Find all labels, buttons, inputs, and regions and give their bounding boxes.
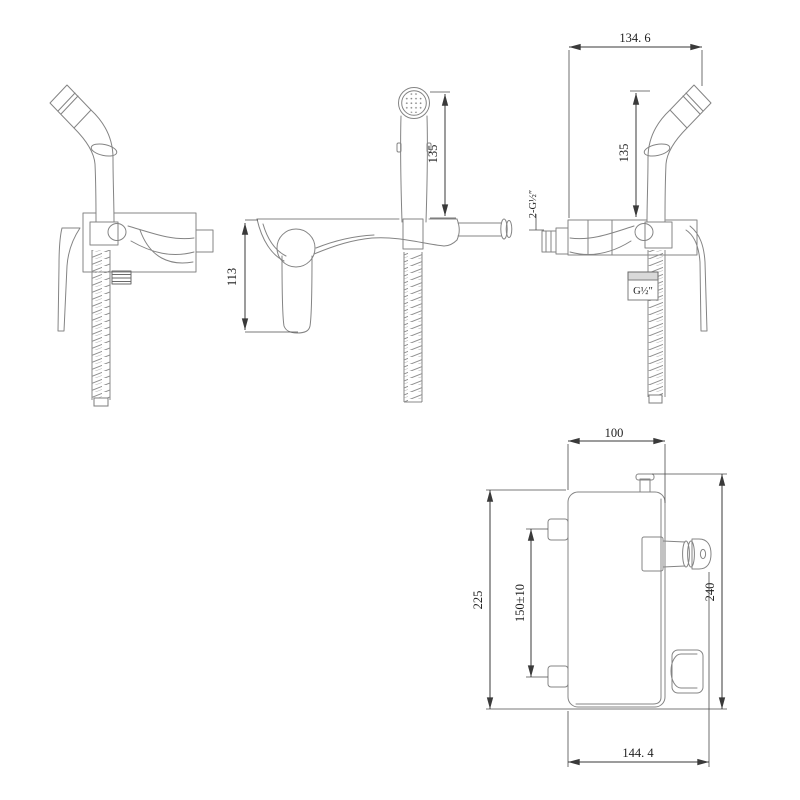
knob-stem	[640, 479, 650, 492]
body-left-swoop	[257, 219, 286, 261]
inlet-tab-lower	[548, 666, 568, 687]
hose-coil-front	[404, 252, 422, 402]
sprayer-nozzle-bands-right	[683, 93, 703, 114]
inlet-tab-upper	[548, 519, 568, 540]
pivot-dome-right	[635, 224, 653, 241]
technical-drawing-sheet: 135 113 G½″ 134. 6	[0, 0, 800, 800]
sprayer-socket-front	[403, 219, 423, 249]
sprayer-handle-right	[647, 110, 687, 222]
dim-plate-height: 225	[471, 591, 485, 610]
handle-end-hole	[700, 549, 705, 558]
inlet-pipe	[556, 228, 568, 254]
sprayer-nozzle-right	[670, 85, 711, 128]
dim-overall-height: 240	[703, 583, 717, 602]
pivot-dome	[108, 224, 126, 241]
inlet-nut-ribs	[546, 231, 551, 252]
view-front: 135 113	[225, 88, 512, 403]
spray-face-dots	[404, 93, 424, 113]
plate-inner-edge	[576, 499, 661, 704]
sprayer-socket-right	[645, 222, 672, 248]
body-right-cap	[444, 219, 459, 246]
dim-plate-width: 100	[605, 426, 624, 440]
dim-inlet-spacing: 150±10	[513, 584, 527, 622]
sprayer-grip	[401, 116, 428, 222]
handle-mount	[642, 537, 663, 571]
dim-sprayer-height-side: 135	[617, 144, 631, 163]
view-side-left	[50, 85, 213, 406]
dim-top-width: 134. 6	[619, 31, 650, 45]
sprayer-handle	[74, 110, 114, 222]
sprayer-nozzle-bands	[58, 93, 78, 114]
handle-pivot-dome	[277, 229, 315, 267]
inlet-nut	[542, 231, 556, 252]
label-inlet-thread: 2-G½″	[528, 190, 539, 219]
outlet-seat-arc	[671, 654, 697, 688]
sprayer-trigger	[90, 142, 118, 158]
sprayer-socket	[90, 222, 118, 245]
hose-nut-ribs	[112, 275, 131, 282]
body-contours	[128, 226, 194, 263]
hose-coil	[92, 250, 110, 400]
view-top: 100 225 150±10 240 144. 4	[471, 426, 727, 767]
handle-collar-b	[688, 541, 695, 567]
handle-barrel	[663, 541, 685, 567]
mixer-lever-front	[282, 256, 312, 333]
drawing-canvas: 135 113 G½″ 134. 6	[0, 0, 800, 800]
dim-handle-height: 113	[225, 268, 239, 286]
mixer-lever	[58, 228, 80, 331]
ext-lines-150	[526, 529, 548, 677]
outlet-stub	[196, 230, 213, 252]
dim-overall-depth: 144. 4	[622, 746, 654, 760]
wall-stub	[458, 223, 501, 236]
body-contours-right	[570, 226, 634, 255]
label-hose-thread: G½″	[633, 286, 653, 297]
dim-sprayer-height-front: 135	[426, 145, 440, 164]
sprayer-nozzle	[50, 85, 91, 128]
view-side-right: G½″ 134. 6 135 2-G½″	[528, 31, 711, 403]
bracket-body-right	[568, 220, 697, 255]
sprayer-trigger-right	[643, 142, 671, 158]
hose-nut-collar	[628, 272, 658, 280]
hose-end-cap	[94, 398, 108, 406]
body-bottom-swoop	[314, 235, 444, 254]
ext-lines-144	[568, 572, 709, 767]
mounting-plate	[568, 492, 665, 707]
ext-lines-113	[245, 220, 298, 332]
hose-end-cap-right	[649, 395, 662, 403]
